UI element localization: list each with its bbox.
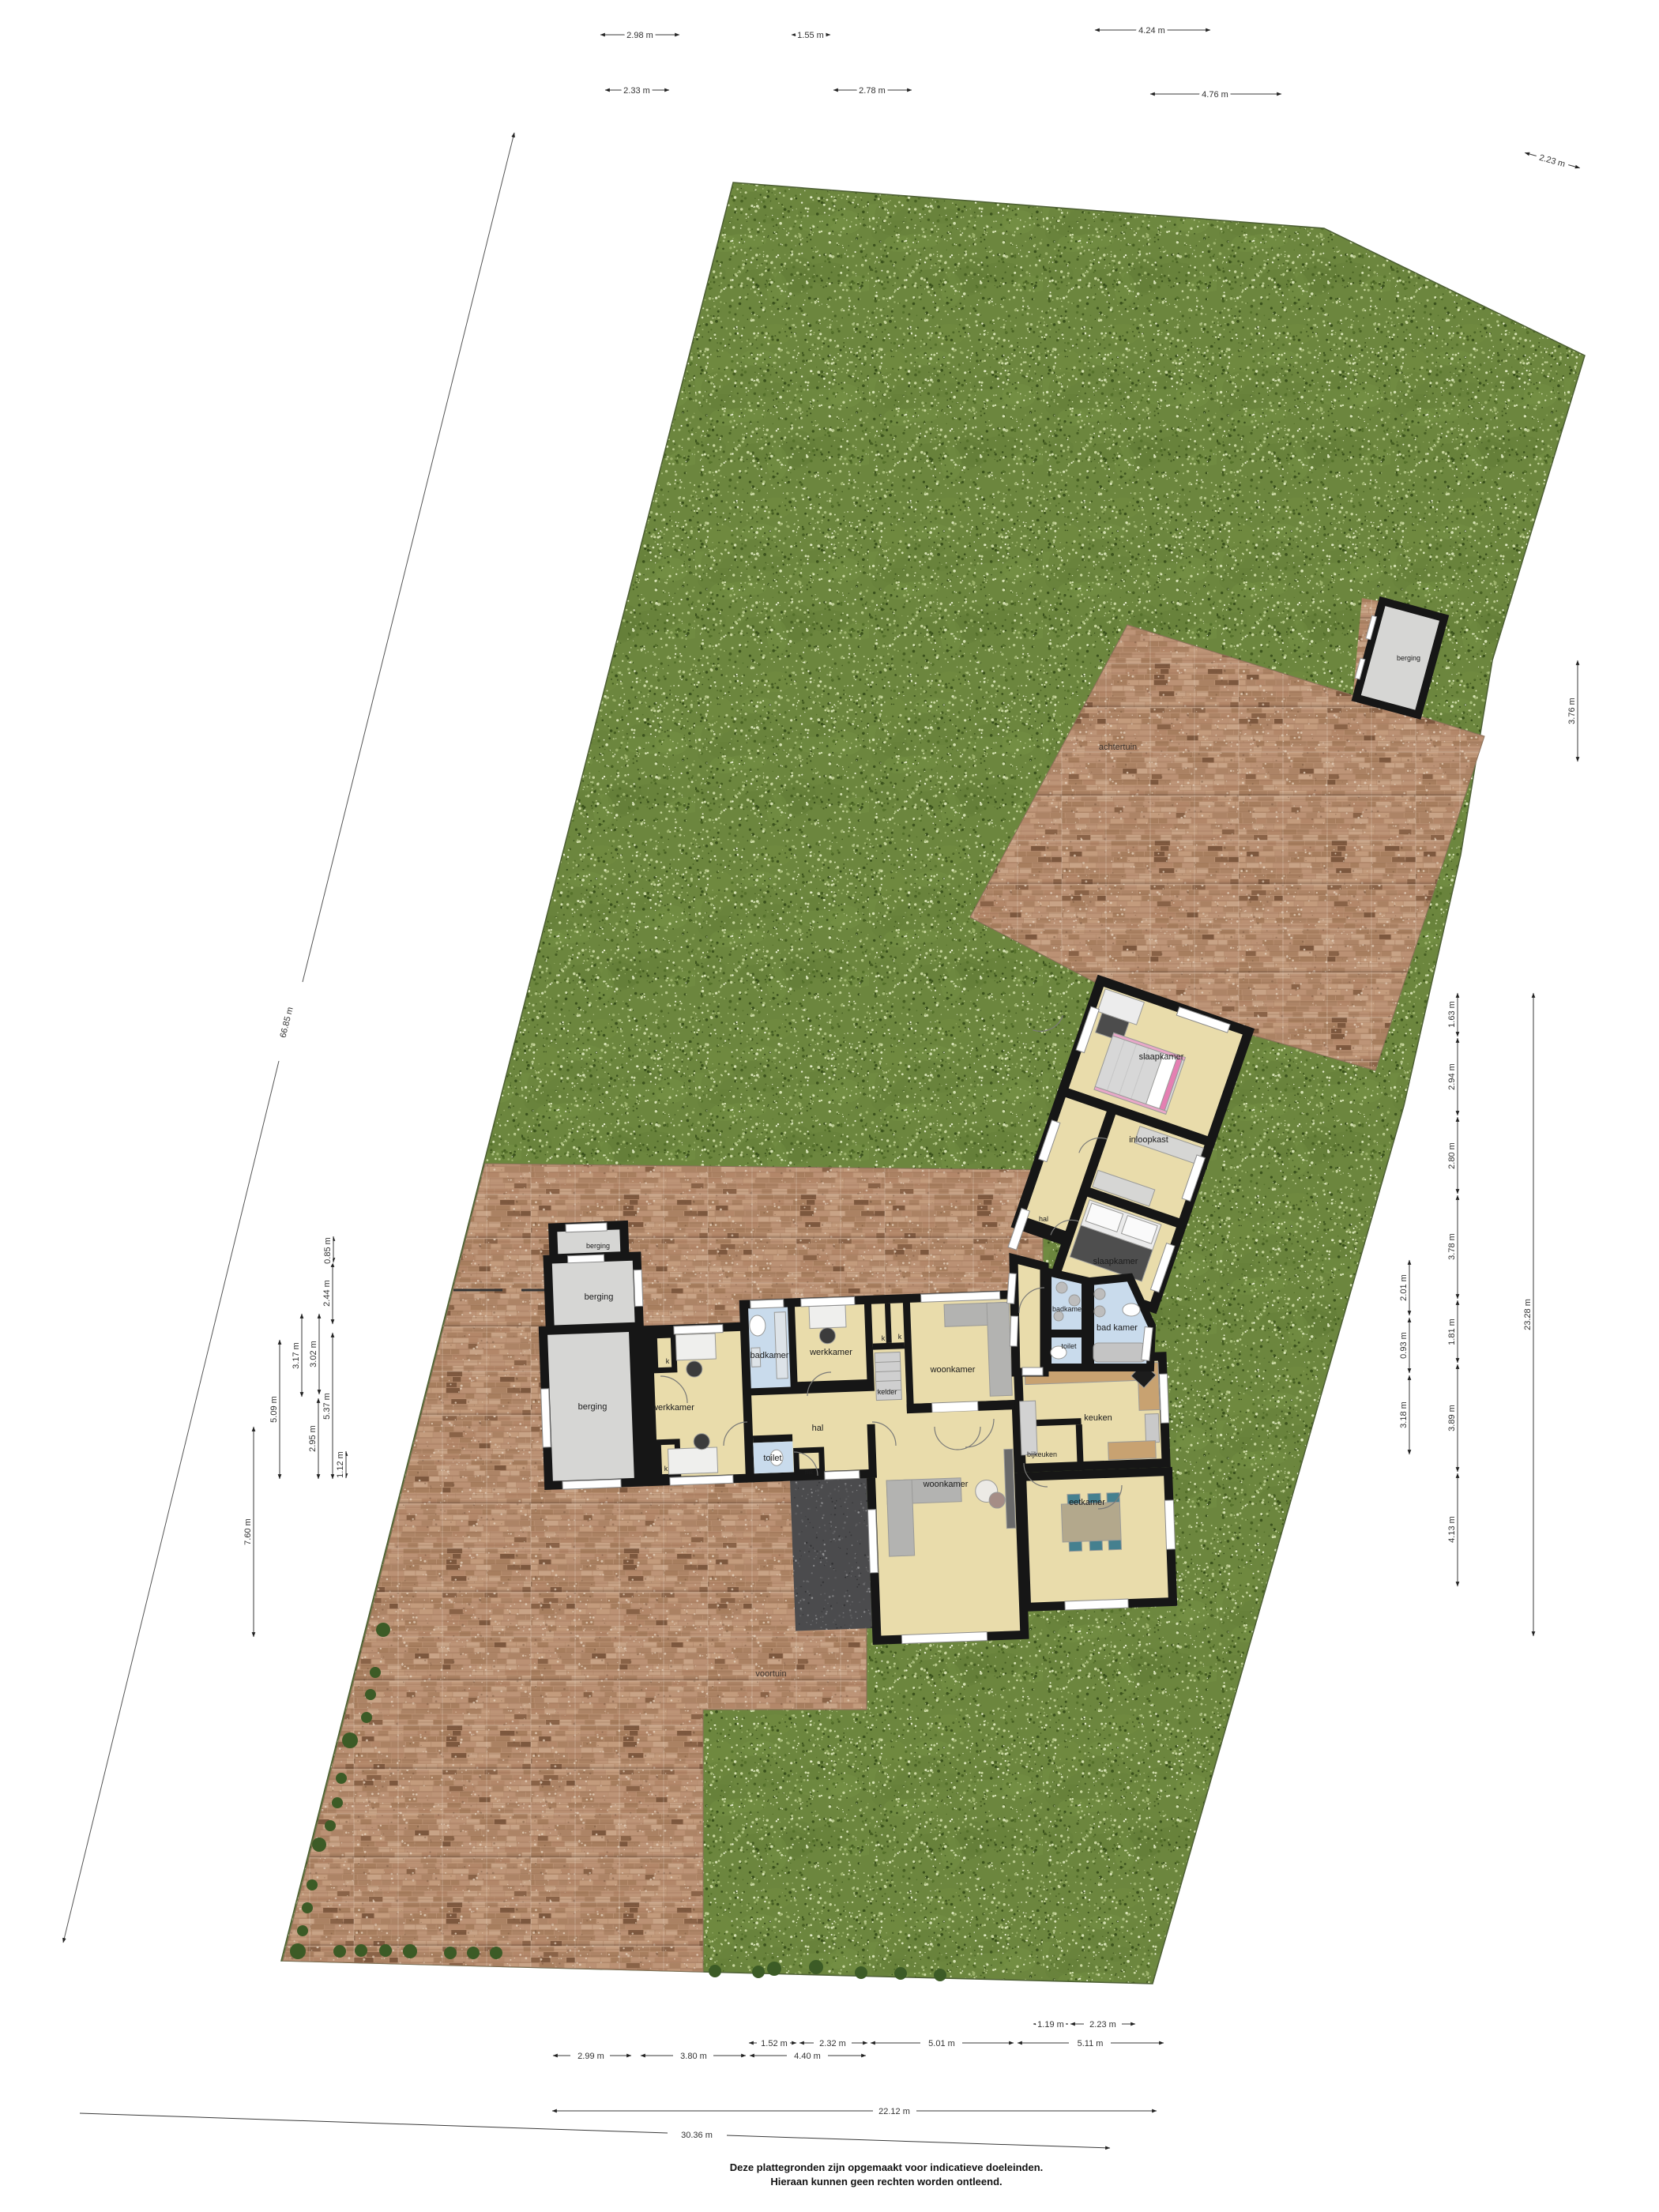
svg-text:woonkamer: woonkamer bbox=[923, 1480, 969, 1489]
svg-text:k: k bbox=[664, 1465, 668, 1473]
svg-text:berging: berging bbox=[585, 1292, 614, 1302]
svg-text:bijkeuken: bijkeuken bbox=[1027, 1450, 1057, 1458]
svg-text:5.11 m: 5.11 m bbox=[1078, 2039, 1104, 2048]
svg-text:2.98 m: 2.98 m bbox=[626, 31, 653, 40]
svg-text:2.99 m: 2.99 m bbox=[577, 2052, 604, 2061]
svg-text:5.09 m: 5.09 m bbox=[269, 1396, 279, 1423]
svg-text:3.80 m: 3.80 m bbox=[680, 2052, 707, 2061]
svg-text:berging: berging bbox=[578, 1402, 608, 1412]
svg-text:3.78 m: 3.78 m bbox=[1447, 1233, 1457, 1260]
svg-text:k: k bbox=[882, 1334, 886, 1342]
svg-text:3.76 m: 3.76 m bbox=[1567, 698, 1577, 724]
svg-text:2.95 m: 2.95 m bbox=[308, 1425, 318, 1452]
svg-text:badkamer: badkamer bbox=[1052, 1305, 1084, 1313]
svg-text:toilet: toilet bbox=[763, 1454, 781, 1463]
svg-text:berging: berging bbox=[586, 1242, 610, 1250]
svg-text:k: k bbox=[898, 1333, 902, 1341]
svg-text:1.52 m: 1.52 m bbox=[761, 2039, 788, 2048]
svg-text:3.17 m: 3.17 m bbox=[292, 1342, 301, 1369]
svg-text:2.94 m: 2.94 m bbox=[1447, 1063, 1457, 1090]
svg-text:30.36 m: 30.36 m bbox=[681, 2131, 713, 2140]
svg-text:2.80 m: 2.80 m bbox=[1447, 1142, 1457, 1169]
svg-text:berging: berging bbox=[1397, 654, 1420, 662]
svg-text:eetkamer: eetkamer bbox=[1069, 1498, 1105, 1507]
svg-text:werkkamer: werkkamer bbox=[809, 1348, 852, 1357]
svg-text:werkkamer: werkkamer bbox=[651, 1403, 694, 1413]
svg-text:4.24 m: 4.24 m bbox=[1138, 26, 1165, 36]
svg-text:achtertuin: achtertuin bbox=[1099, 743, 1137, 752]
svg-text:1.12 m: 1.12 m bbox=[336, 1451, 345, 1478]
svg-text:2.44 m: 2.44 m bbox=[322, 1280, 332, 1307]
svg-text:2.01 m: 2.01 m bbox=[1399, 1274, 1409, 1301]
svg-text:3.02 m: 3.02 m bbox=[309, 1341, 318, 1367]
svg-text:2.32 m: 2.32 m bbox=[819, 2039, 846, 2048]
svg-text:k: k bbox=[666, 1357, 670, 1365]
svg-text:Deze plattegronden zijn opgema: Deze plattegronden zijn opgemaakt voor i… bbox=[730, 2161, 1044, 2173]
svg-text:7.60 m: 7.60 m bbox=[243, 1518, 253, 1545]
svg-text:badkamer: badkamer bbox=[750, 1351, 789, 1360]
svg-text:bad kamer: bad kamer bbox=[1097, 1323, 1138, 1333]
svg-text:hal: hal bbox=[812, 1424, 824, 1433]
svg-text:5.01 m: 5.01 m bbox=[928, 2039, 955, 2048]
svg-text:1.63 m: 1.63 m bbox=[1447, 1001, 1457, 1028]
svg-text:inloopkast: inloopkast bbox=[1129, 1135, 1168, 1145]
svg-text:1.55 m: 1.55 m bbox=[797, 31, 824, 40]
svg-text:5.37 m: 5.37 m bbox=[322, 1393, 332, 1420]
svg-text:slaapkamer: slaapkamer bbox=[1139, 1052, 1184, 1062]
svg-text:Hieraan kunnen geen rechten wo: Hieraan kunnen geen rechten worden ontle… bbox=[770, 2176, 1002, 2188]
svg-text:kelder: kelder bbox=[878, 1388, 897, 1396]
svg-text:2.78 m: 2.78 m bbox=[859, 86, 886, 96]
svg-text:keuken: keuken bbox=[1084, 1413, 1112, 1423]
svg-text:slaapkamer: slaapkamer bbox=[1093, 1257, 1138, 1266]
svg-text:4.76 m: 4.76 m bbox=[1202, 90, 1228, 100]
svg-text:hal: hal bbox=[1039, 1215, 1048, 1223]
svg-text:2.23 m: 2.23 m bbox=[1089, 2020, 1116, 2030]
svg-text:toilet: toilet bbox=[1061, 1342, 1077, 1350]
svg-text:0.93 m: 0.93 m bbox=[1399, 1332, 1409, 1359]
svg-text:23.28 m: 23.28 m bbox=[1523, 1299, 1533, 1330]
svg-text:woonkamer: woonkamer bbox=[930, 1365, 976, 1375]
svg-text:0.85 m: 0.85 m bbox=[323, 1237, 333, 1264]
svg-text:1.81 m: 1.81 m bbox=[1447, 1319, 1457, 1345]
svg-text:3.89 m: 3.89 m bbox=[1447, 1405, 1457, 1431]
svg-text:4.40 m: 4.40 m bbox=[794, 2052, 821, 2061]
svg-text:mk: mk bbox=[805, 1469, 814, 1476]
svg-text:4.13 m: 4.13 m bbox=[1447, 1516, 1457, 1543]
svg-text:2.33 m: 2.33 m bbox=[623, 86, 650, 96]
svg-text:1.19 m: 1.19 m bbox=[1037, 2020, 1064, 2030]
svg-text:3.18 m: 3.18 m bbox=[1399, 1401, 1409, 1428]
svg-text:voortuin: voortuin bbox=[755, 1669, 786, 1679]
svg-text:22.12 m: 22.12 m bbox=[878, 2107, 910, 2116]
